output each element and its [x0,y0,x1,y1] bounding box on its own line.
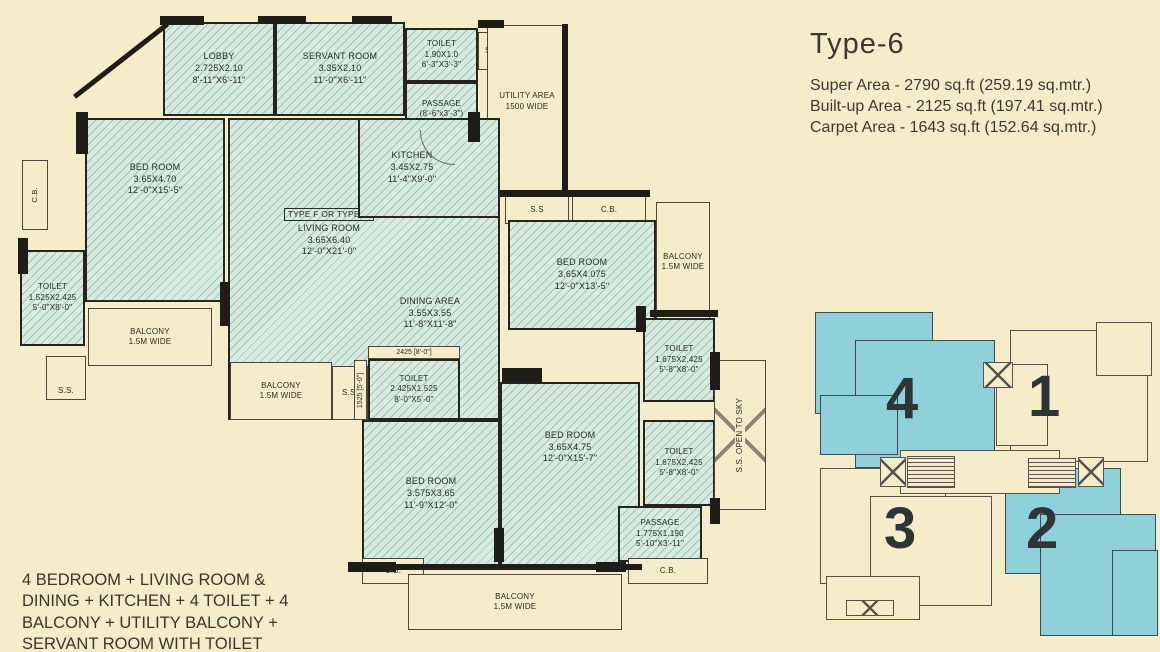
keyplan-unit-4-number: 4 [886,370,918,428]
wall-strip [500,190,650,197]
wall-chunk [468,112,480,142]
room-toilet-right2: TOILET1.675X2.4255'-8"X8'-0" [643,420,715,506]
title-block: Type-6 Super Area - 2790 sq.ft (259.19 s… [810,28,1103,138]
shaft-open-to-sky: S.S. OPEN TO SKY [714,360,766,510]
floor-plan-sheet: TYPE F OR TYPE -6 LIVING ROOM 3.65X6.40 … [0,0,1160,652]
wall-chunk [710,498,720,524]
cb-box-bottom-right: C.B. [628,558,708,584]
room-toilet-right1: TOILET1.675X2.4255'-8"X8'-0" [643,318,715,402]
room-bedroom-bottom: BED ROOM3.575X3.6511'-9"X12'-0" [362,420,500,568]
wall-chunk [220,282,230,326]
keyplan-stairs [907,456,955,488]
keyplan-lift-shaft [880,457,906,487]
key-plan: 4 1 3 2 [800,300,1160,652]
room-toilet-mid: TOILET2.425X1.5258'-0"X5'-0" [368,359,460,420]
wall-chunk [636,306,646,332]
cb-box-left: C.B. [22,160,48,230]
keyplan-stairs [1028,458,1076,488]
wall-chunk [76,112,88,154]
wall-strip [362,564,642,570]
keyplan-unit-3-number: 3 [884,500,916,558]
balcony-left: BALCONY1.5M WIDE [88,308,212,366]
keyplan-unit-1-number: 1 [1028,368,1060,426]
wall-chunk [258,16,306,24]
wall-chunk [710,352,720,390]
ss-box-left: S.S. [46,356,86,400]
keyplan-unit-1-shape [1096,322,1152,376]
balcony-mid: BALCONY1.5M WIDE [230,362,332,420]
wall-diagonal [73,22,169,99]
keyplan-unit-2-shape [1112,550,1158,636]
plan-title: Type-6 [810,28,1103,61]
room-passage-bottom: PASSAGE1.775X1.1905'-10"X3'-11" [618,506,702,562]
dining-area-label: DINING AREA 3.55X3.55 11'-8"X11'-8" [385,296,475,331]
wall-strip [650,310,718,317]
wall-chunk [494,528,504,562]
keyplan-lift-shaft [1078,457,1104,487]
dim-side-toilet-mid: 1525 [5'-0"] [354,360,367,420]
balcony-right: BALCONY1.5M WIDE [656,202,710,322]
built-up-area: Built-up Area - 2125 sq.ft (197.41 sq.mt… [810,96,1103,117]
room-toilet-servant: TOILET1.90X1.06'-3"X3'-3" [405,28,478,82]
wall-chunk [502,368,542,382]
room-toilet-left: TOILET1.525X2.4255'-0"X8'-0" [20,250,85,346]
keyplan-lift-shaft [983,362,1013,388]
room-lobby: LOBBY2.725X2.108'-11"X6'-11" [163,22,275,116]
keyplan-unit-2-number: 2 [1026,500,1058,558]
unit-description: 4 BEDROOM + LIVING ROOM & DINING + KITCH… [22,570,290,652]
super-area: Super Area - 2790 sq.ft (259.19 sq.mtr.) [810,75,1103,96]
wall-strip [562,24,568,190]
room-bedroom-right1: BED ROOM3.65X4.07512'-0"X13'-5" [508,220,656,330]
keyplan-lift-shaft [846,600,894,616]
balcony-bottom: BALCONY1.5M WIDE [408,574,622,630]
carpet-area: Carpet Area - 1643 sq.ft (152.64 sq.mtr.… [810,117,1103,138]
wall-chunk [478,20,504,28]
wall-chunk [352,16,392,24]
dim-top-toilet-mid: 2425 [8'-0"] [368,346,460,359]
room-servant: SERVANT ROOM3.35X2.1011'-0"X6'-11" [275,22,405,116]
room-bedroom-master: BED ROOM3.65X4.7012'-0"X15'-5" [85,118,225,302]
wall-chunk [18,238,28,274]
